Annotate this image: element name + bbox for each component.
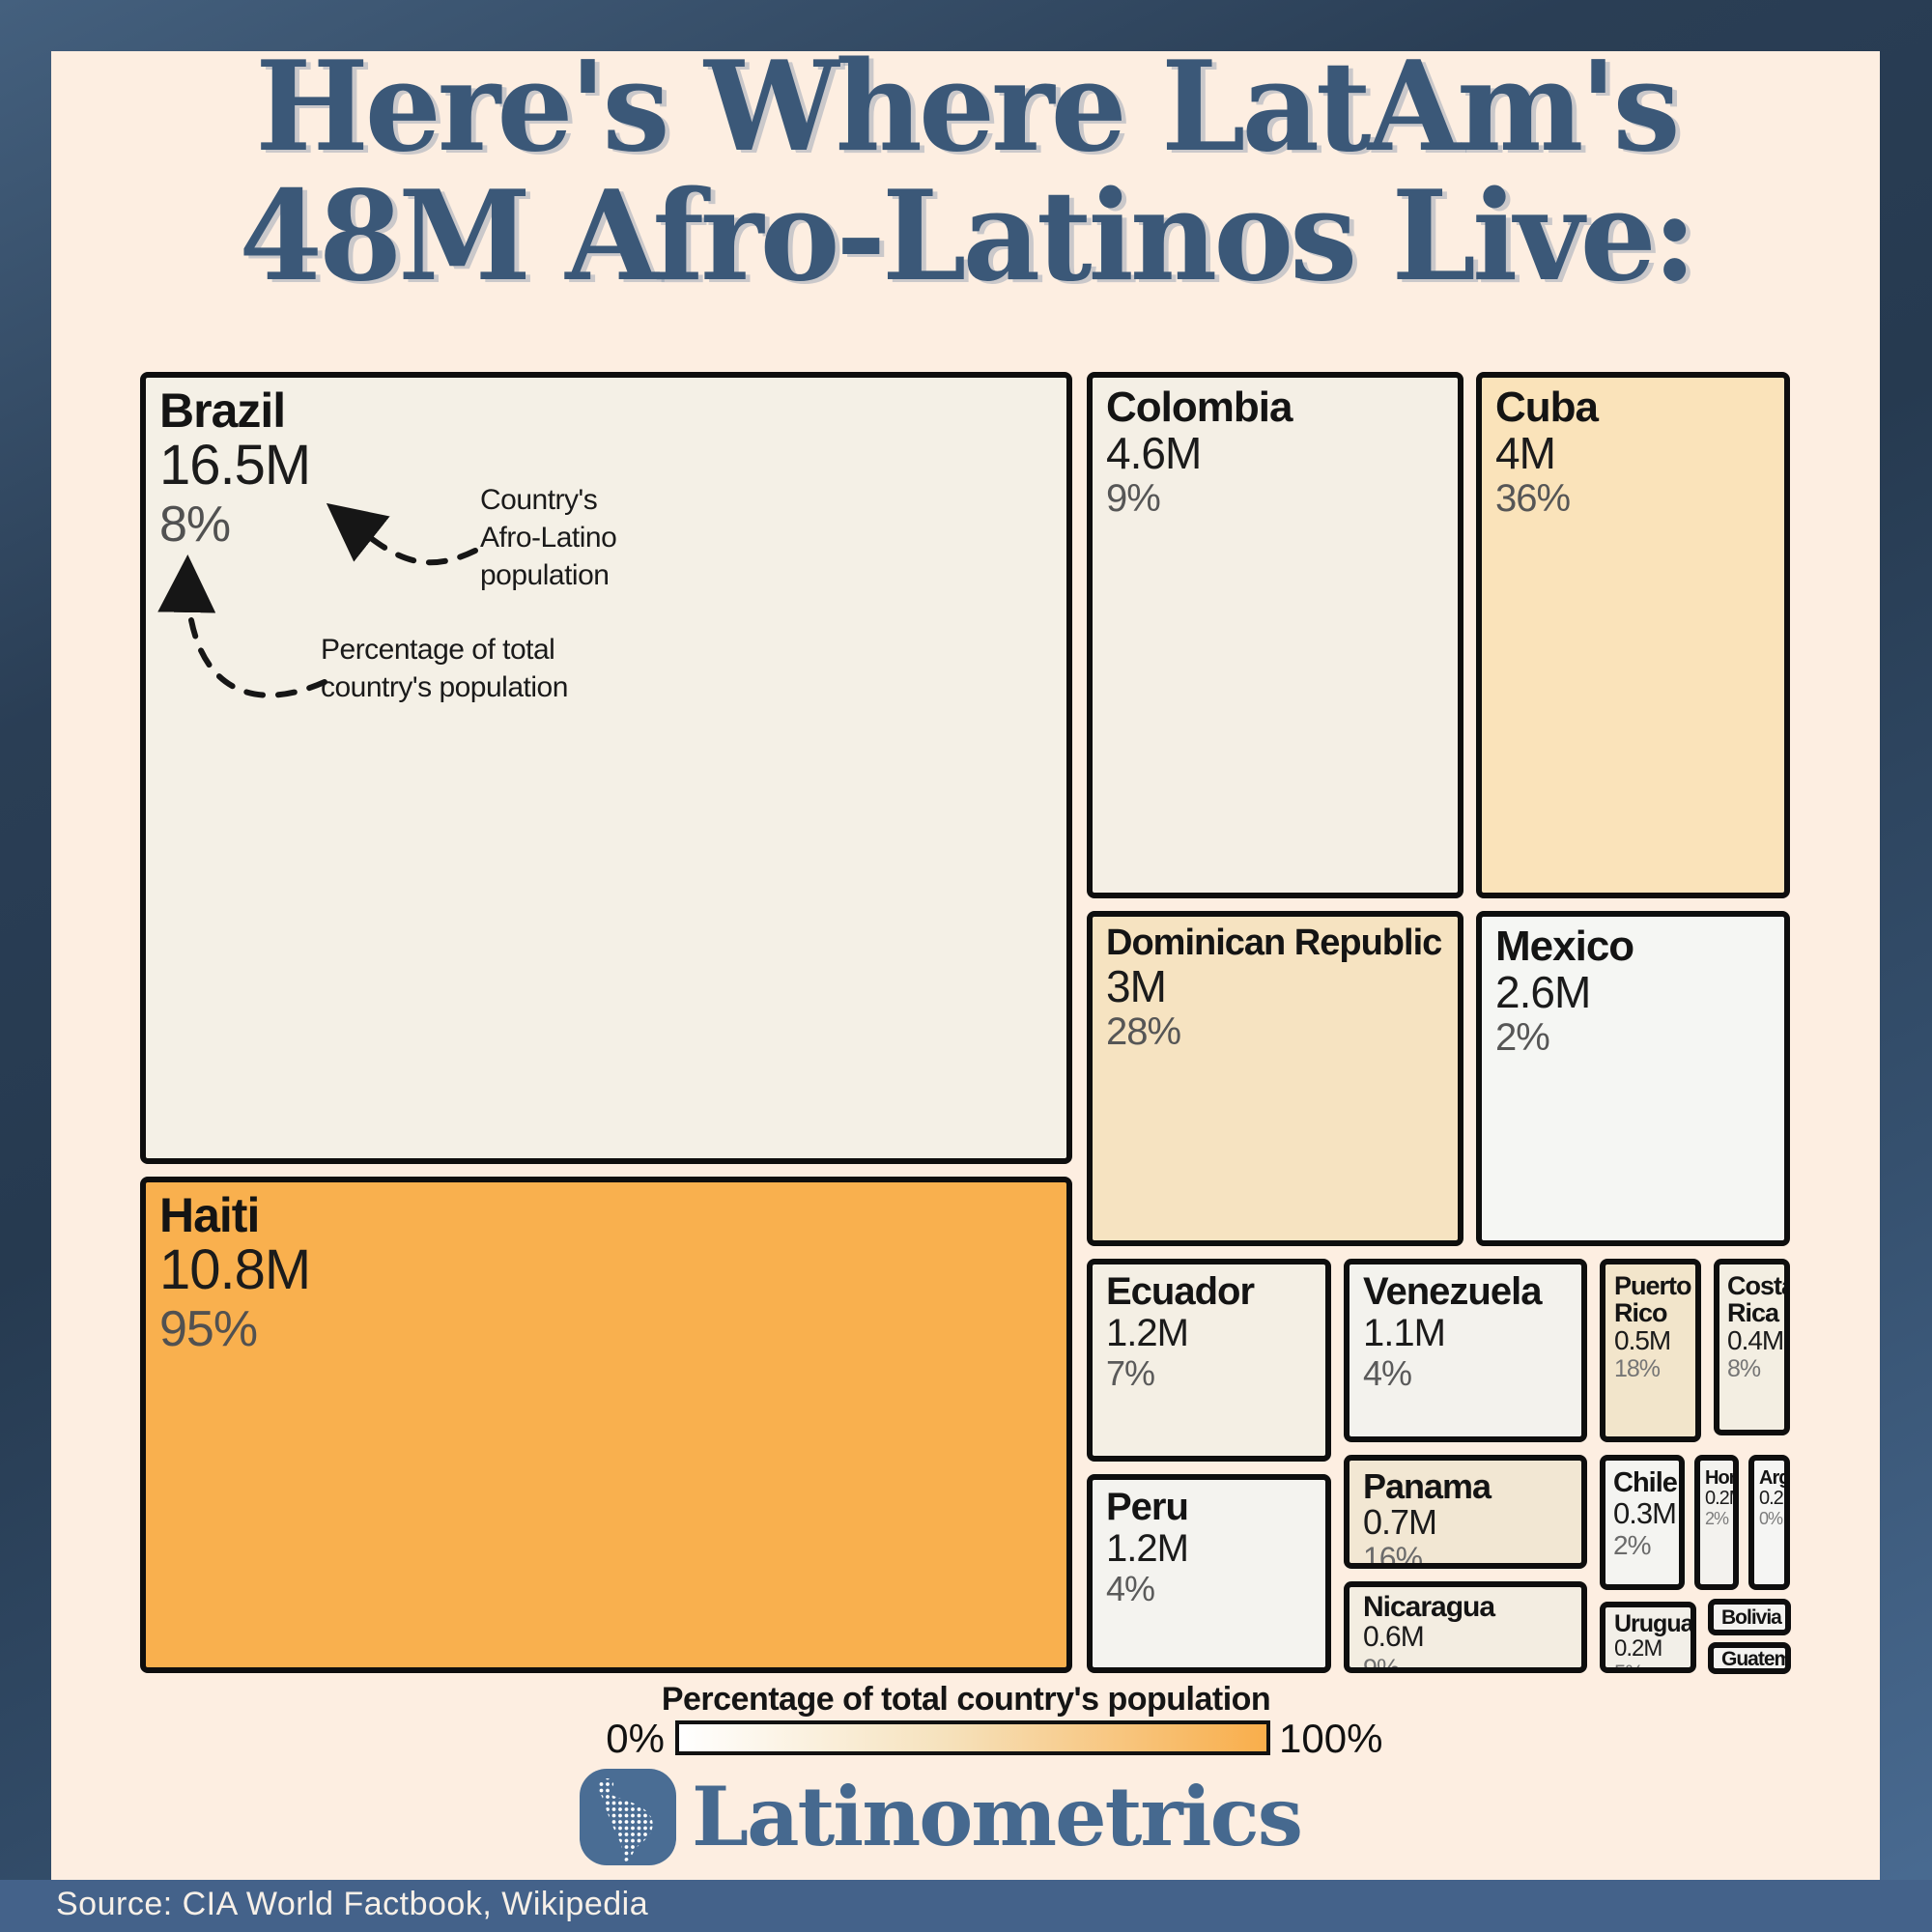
treemap-box-mexico: Mexico 2.6M 2% — [1476, 911, 1790, 1246]
country-value: .1M — [1788, 1607, 1791, 1630]
country-percent: 95% — [159, 1301, 1061, 1357]
title-line-2: 48M Afro-Latinos Live: — [29, 172, 1903, 301]
country-percent: 4% — [1106, 1570, 1320, 1608]
country-value: 1.1M — [1363, 1313, 1576, 1354]
country-name: Nicaragua — [1363, 1592, 1576, 1622]
country-percent: 2% — [1495, 1016, 1778, 1060]
country-name: Peru — [1106, 1488, 1320, 1528]
country-value: 4M — [1495, 430, 1778, 478]
country-percent: 0% — [1759, 1509, 1778, 1528]
country-percent: 28% — [1106, 1010, 1452, 1054]
country-value: 0.2M — [1759, 1489, 1778, 1510]
country-name: Venezuela — [1363, 1272, 1576, 1313]
country-value: 3M — [1106, 963, 1452, 1011]
country-name: Hond. — [1705, 1468, 1727, 1489]
country-name: Uruguay — [1614, 1611, 1685, 1636]
legend-max-label: 100% — [1279, 1716, 1382, 1762]
source-text: Source: CIA World Factbook, Wikipedia — [56, 1886, 648, 1923]
country-name: Brazil — [159, 385, 1061, 436]
treemap-box-bolivia: Bolivia .1M 1% — [1708, 1599, 1791, 1635]
treemap-box-haiti: Haiti 10.8M 95% — [140, 1177, 1072, 1673]
treemap-box-cuba: Cuba 4M 36% — [1476, 372, 1790, 898]
country-name: Dominican Republic — [1106, 924, 1452, 963]
country-value: 1.2M — [1106, 1528, 1320, 1570]
treemap-box-peru: Peru 1.2M 4% — [1087, 1474, 1331, 1673]
country-value: 0.6M — [1363, 1622, 1576, 1653]
country-name: Haiti — [159, 1190, 1061, 1240]
country-name: Guatemala — [1721, 1649, 1791, 1670]
country-percent: 5% — [1614, 1662, 1685, 1673]
treemap-box-nicaragua: Nicaragua 0.6M 9% — [1344, 1581, 1587, 1673]
country-percent: 2% — [1705, 1509, 1727, 1528]
country-percent: 18% — [1614, 1355, 1690, 1382]
treemap-box-venezuela: Venezuela 1.1M 4% — [1344, 1259, 1587, 1442]
country-name: Colombia — [1106, 385, 1452, 430]
treemap-box-honduras: Hond. 0.2M 2% — [1694, 1455, 1739, 1590]
treemap-box-argentina: Arg. 0.2M 0% — [1748, 1455, 1790, 1590]
treemap-box-panama: Panama 0.7M 16% — [1344, 1455, 1587, 1569]
country-percent: 7% — [1106, 1354, 1320, 1393]
country-name: Costa Rica — [1727, 1272, 1778, 1326]
legend-gradient-bar — [675, 1720, 1270, 1755]
title-line-1: Here's Where LatAm's — [29, 43, 1903, 172]
country-name: Chile — [1613, 1468, 1673, 1497]
country-percent: 8% — [1727, 1355, 1778, 1382]
legend-min-label: 0% — [606, 1716, 665, 1762]
country-name: Ecuador — [1106, 1272, 1320, 1313]
treemap-box-guatemala: Guatemala .1M — [1708, 1642, 1791, 1674]
country-name: Panama — [1363, 1468, 1576, 1504]
country-percent: 2% — [1613, 1530, 1673, 1560]
latinometrics-logo: Latinometrics — [580, 1766, 1410, 1868]
country-name: Mexico — [1495, 924, 1778, 969]
infographic-canvas: Here's Where LatAm's 48M Afro-Latinos Li… — [0, 0, 1932, 1932]
country-value: 0.2M — [1614, 1636, 1685, 1662]
page-title: Here's Where LatAm's 48M Afro-Latinos Li… — [0, 43, 1932, 302]
country-percent: 9% — [1363, 1654, 1576, 1673]
legend-title: Percentage of total country's population — [0, 1681, 1932, 1719]
country-percent: 36% — [1495, 477, 1778, 521]
country-percent: 16% — [1363, 1542, 1576, 1569]
country-value: 0.3M — [1613, 1497, 1673, 1529]
country-name: Cuba — [1495, 385, 1778, 430]
country-value: 2.6M — [1495, 969, 1778, 1017]
country-percent: 9% — [1106, 477, 1452, 521]
country-value: 4.6M — [1106, 430, 1452, 478]
country-value: 0.7M — [1363, 1504, 1576, 1542]
country-percent: 4% — [1363, 1354, 1576, 1393]
treemap-box-uruguay: Uruguay 0.2M 5% — [1600, 1602, 1696, 1673]
treemap-box-chile: Chile 0.3M 2% — [1600, 1455, 1685, 1590]
country-name: Bolivia — [1721, 1607, 1781, 1629]
brand-name: Latinometrics — [692, 1776, 1301, 1858]
treemap-box-ecuador: Ecuador 1.2M 7% — [1087, 1259, 1331, 1462]
treemap-box-puerto-rico: Puerto Rico 0.5M 18% — [1600, 1259, 1701, 1442]
country-value: 10.8M — [159, 1240, 1061, 1301]
country-value: 0.4M — [1727, 1326, 1778, 1355]
footer-bar: Source: CIA World Factbook, Wikipedia — [0, 1880, 1932, 1932]
latinometrics-map-icon — [580, 1767, 676, 1867]
annotation-percent: Percentage of total country's population — [321, 631, 568, 706]
country-value: 0.2M — [1705, 1489, 1727, 1510]
treemap-box-colombia: Colombia 4.6M 9% — [1087, 372, 1463, 898]
country-name: Puerto Rico — [1614, 1272, 1690, 1326]
treemap-box-costa-rica: Costa Rica 0.4M 8% — [1714, 1259, 1790, 1435]
annotation-population: Country's Afro-Latino population — [480, 481, 616, 594]
treemap-box-dominican-republic: Dominican Republic 3M 28% — [1087, 911, 1463, 1246]
country-value: 1.2M — [1106, 1313, 1320, 1354]
country-name: Arg. — [1759, 1468, 1778, 1489]
country-value: 0.5M — [1614, 1326, 1690, 1355]
